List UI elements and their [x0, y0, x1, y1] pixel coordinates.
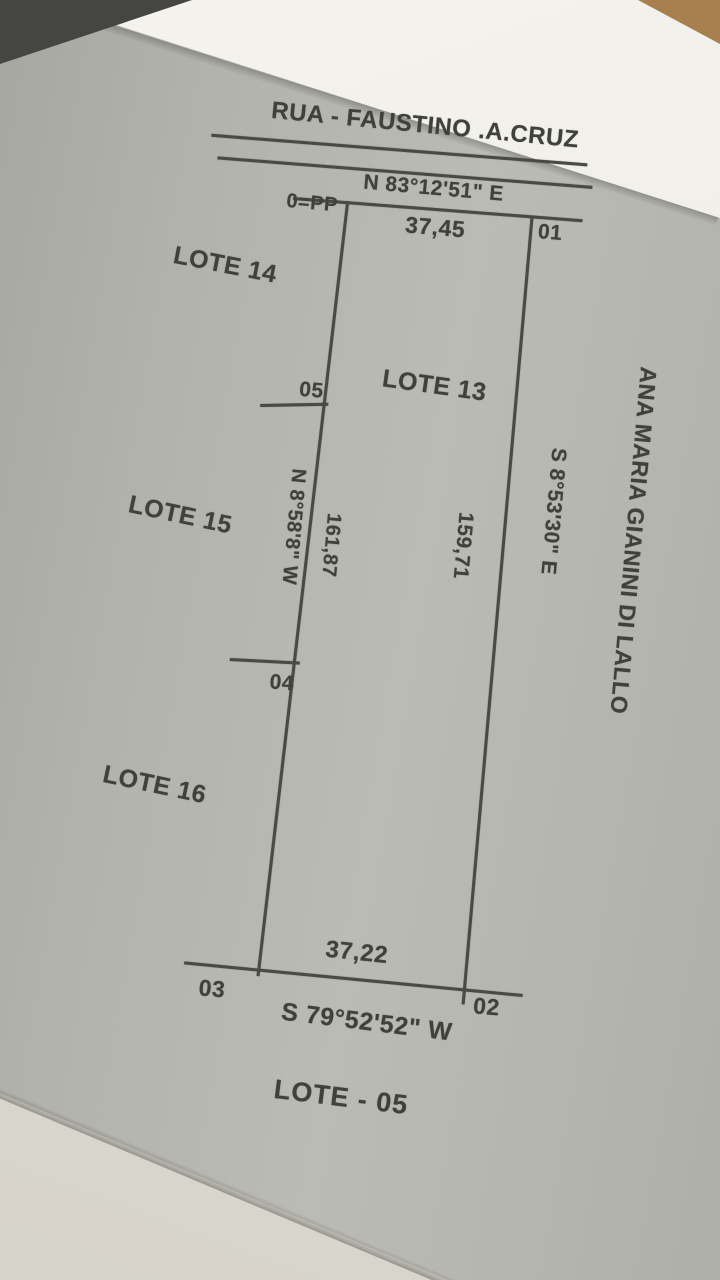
adjoiner-lote16-label: LOTE 16	[64, 752, 246, 818]
right-boundary-line	[462, 217, 534, 1004]
adjoiner-lote15-label: LOTE 15	[89, 482, 271, 548]
back-length-label: 37,22	[276, 931, 438, 976]
vertex-03-label: 03	[176, 972, 248, 1005]
vertex-01-label: 01	[516, 218, 584, 248]
right-adjoiner-name-label: ANA MARIA GIANINI DI LALLO	[601, 340, 664, 741]
vertex-04-label: 04	[223, 666, 295, 696]
vertex-05-label: 05	[253, 374, 325, 404]
street-name-label: RUA - FAUSTINO .A.CRUZ	[259, 96, 590, 156]
tick-vertex-04	[230, 658, 300, 665]
left-length-label: 161,87	[314, 499, 346, 591]
vertex-02-label: 02	[450, 990, 522, 1023]
lote13-label: LOTE 13	[343, 359, 525, 413]
plan-title: LOTE - 05	[220, 1068, 462, 1128]
right-bearing-label: S 8°53'30" E	[534, 426, 573, 597]
survey-plan: RUA - FAUSTINO .A.CRUZ N 83°12'51" E 0=P…	[0, 0, 720, 1280]
right-length-label: 159,71	[446, 497, 478, 595]
photographed-survey-page: RUA - FAUSTINO .A.CRUZ N 83°12'51" E 0=P…	[0, 0, 720, 1280]
adjoiner-lote14-label: LOTE 14	[134, 234, 316, 297]
